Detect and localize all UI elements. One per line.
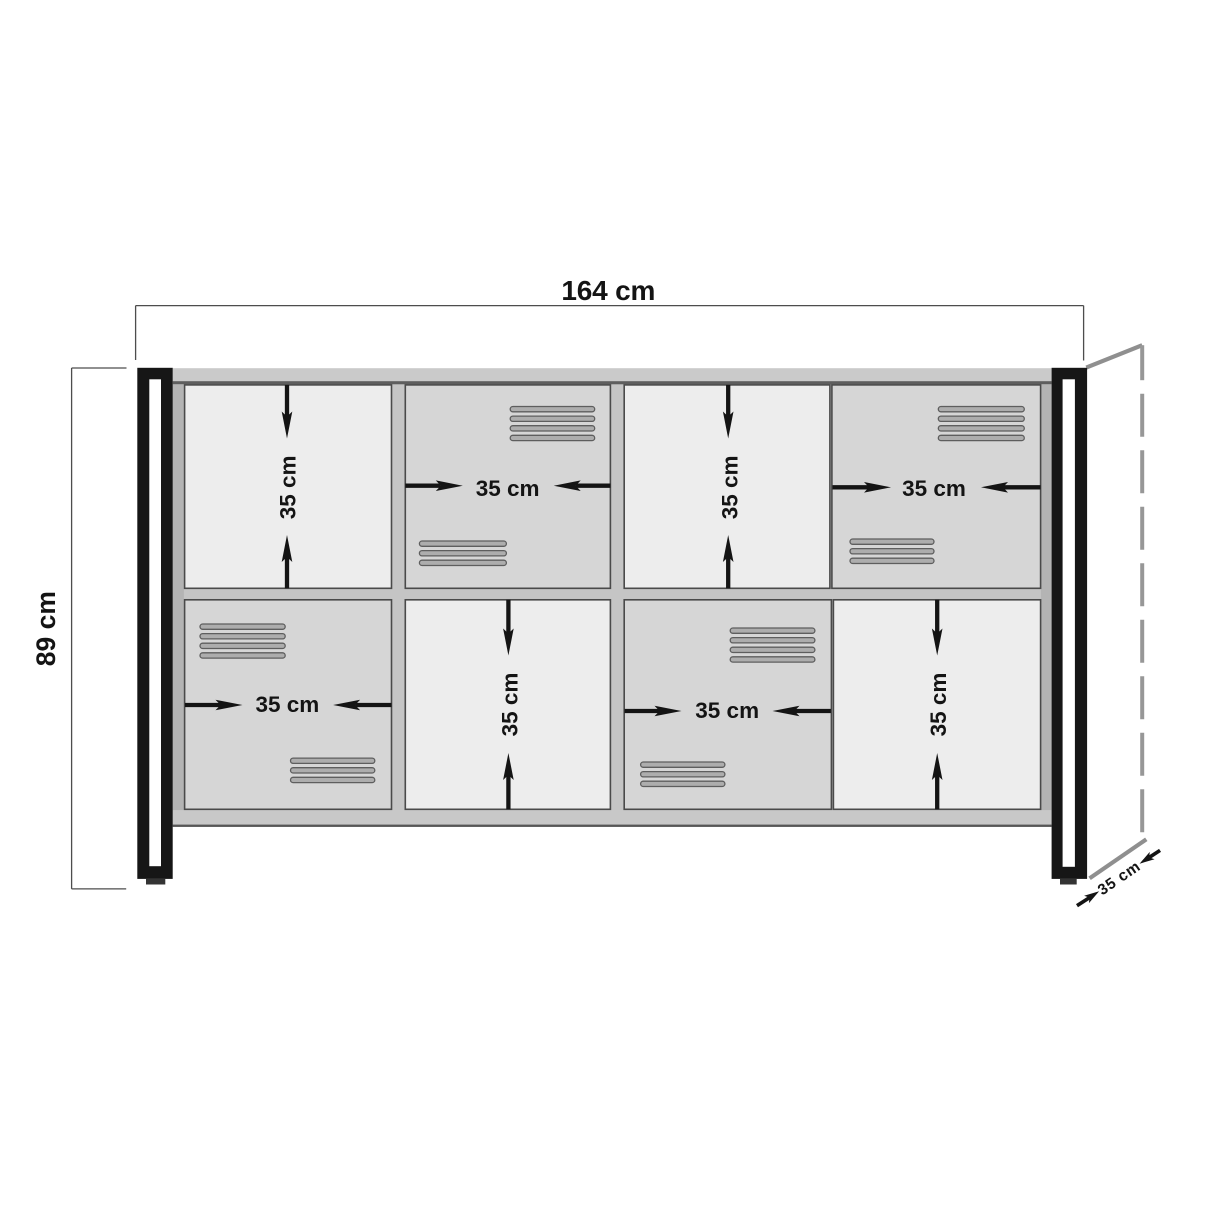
svg-text:35 cm: 35 cm xyxy=(717,455,742,519)
svg-text:35 cm: 35 cm xyxy=(497,673,522,737)
svg-text:35 cm: 35 cm xyxy=(255,692,319,717)
svg-text:35 cm: 35 cm xyxy=(275,455,300,519)
svg-text:35 cm: 35 cm xyxy=(695,698,759,723)
svg-text:89 cm: 89 cm xyxy=(31,591,61,666)
svg-text:35 cm: 35 cm xyxy=(926,673,951,737)
svg-text:164 cm: 164 cm xyxy=(561,275,655,306)
svg-text:35 cm: 35 cm xyxy=(476,476,540,501)
svg-text:35 cm: 35 cm xyxy=(902,476,966,501)
